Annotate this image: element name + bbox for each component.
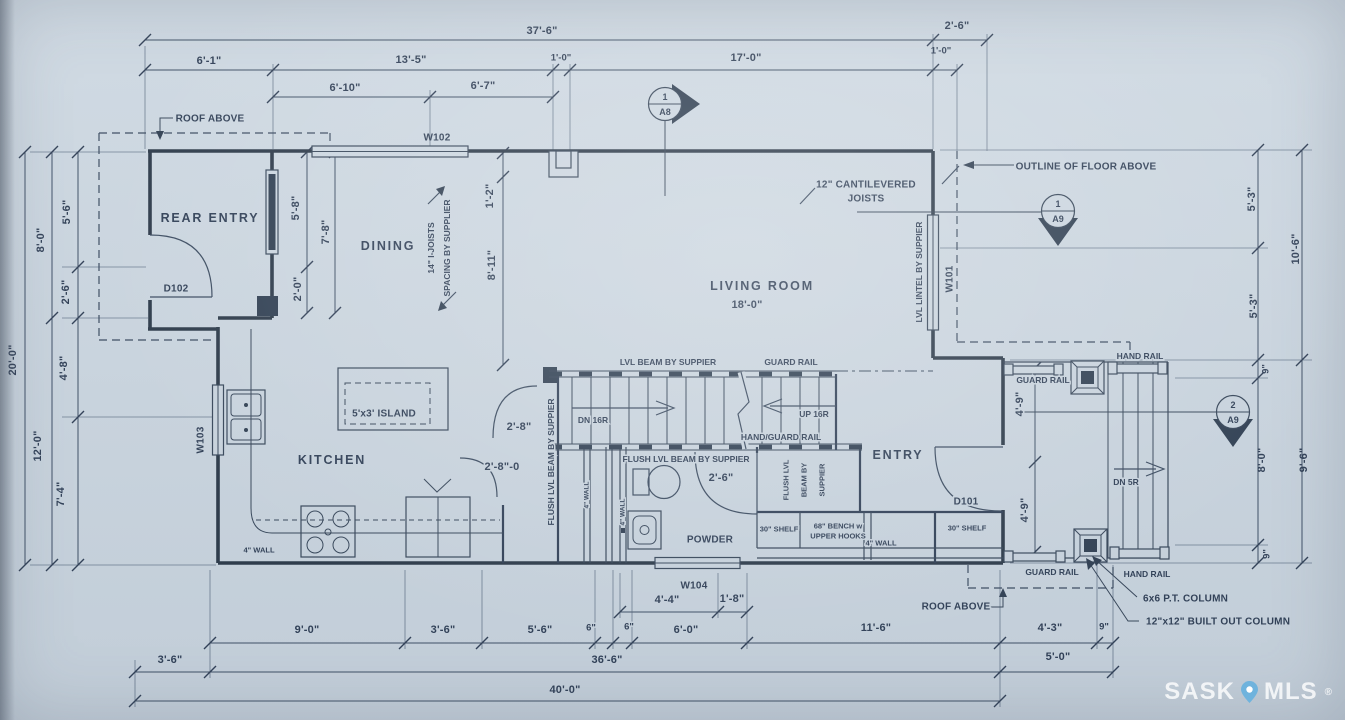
window-w104 [655,558,740,569]
front-porch [1003,361,1169,562]
dim-right-10-6: 10'-6" [1290,233,1302,264]
dim-living-18-0: 18'-0" [731,299,762,311]
note-guard-rail-stairs: GUARD RAIL [764,357,817,367]
section-marker-1-a9: 1 A9 [1038,195,1078,247]
counter-edge [251,329,503,533]
note-bench-line1: 68" BENCH w [814,522,863,531]
island [338,368,448,430]
dim-top-2-6: 2'-6" [945,20,970,32]
stove [301,506,355,557]
dim-left-20-0: 20'-0" [7,344,19,375]
note-bench-line2: UPPER HOOKS [810,532,865,541]
tag-w102: W102 [424,133,451,144]
section-marker-1-a8: 1 A8 [649,84,701,124]
dim-top-17-0: 17'-0" [730,52,761,64]
dim-bottom-3-6-left: 3'-6" [158,654,183,666]
kitchen-fixtures [227,329,503,557]
kitchen-sink [227,390,265,444]
note-flush-beam-h: FLUSH LVL BEAM BY SUPPIER [622,454,749,464]
note-4in-wall-hall2: 4" WALL [620,499,627,526]
note-flush-line3: SUPPIER [818,463,827,497]
floor-plan-photo: 1 A8 1 A9 2 A9 37'-6" 2'-6" 6'-1" 13'-5"… [0,0,1345,720]
dim-right-8-0: 8'-0" [1256,448,1268,473]
dim-bottom-4-3: 4'-3" [1038,622,1063,634]
hand-rail-bottom [1110,547,1169,559]
dim-top-37-6: 37'-6" [526,25,557,37]
note-4in-wall-hall1: 4" WALL [584,482,591,509]
room-kitchen: KITCHEN [298,453,366,467]
dim-bottom-4-4: 4'-4" [655,594,680,606]
note-flush-line1: FLUSH LVL [782,459,791,500]
dim-bottom-40-0: 40'-0" [549,684,580,696]
dim-2-8: 2'-8" [507,421,532,433]
dim-left-5-6: 5'-6" [61,200,73,225]
dim-bottom-6in-left: 6" [586,623,596,634]
chimney-chase [257,170,278,316]
dim-7-8: 7'-8" [320,220,332,245]
dashed-outlines [99,133,1130,588]
marker-number: 1 [1055,199,1060,209]
room-living: LIVING ROOM [710,279,814,293]
note-12x12-column: 12"x12" BUILT OUT COLUMN [1146,617,1290,628]
section-markers: 1 A8 1 A9 2 A9 [649,84,1254,447]
guard-rail-bottom [1004,551,1065,562]
marker-sheet: A9 [1227,415,1239,425]
powder-sink [621,511,661,549]
note-outline-floor-above: OUTLINE OF FLOOR ABOVE [1016,162,1157,173]
note-6x6-column: 6x6 P.T. COLUMN [1143,594,1228,605]
section-marker-2-a9: 2 A9 [1213,396,1253,448]
note-flush-line2: BEAM BY [800,463,809,498]
column-bottom [1074,529,1107,562]
dim-bottom-9in: 9" [1099,622,1109,633]
dim-bottom-1-8: 1'-8" [720,593,745,605]
room-entry: ENTRY [873,448,924,462]
windows [213,146,939,569]
dim-5-8: 5'-8" [290,196,302,221]
note-roof-above-br: ROOF ABOVE [922,602,991,613]
dim-2-6-powder: 2'-6" [709,472,734,484]
dim-right-9-6: 9'-6" [1298,448,1310,473]
note-lvl-beam: LVL BEAM BY SUPPIER [620,357,716,367]
dim-right-9in-lower: 9" [1262,549,1273,559]
dim-bottom-5-6: 5'-6" [528,624,553,636]
tag-w101: W101 [945,265,956,292]
note-ijoists-line2: SPACING BY SUPPLIER [442,200,452,297]
doors [150,235,1003,514]
dim-left-2-6: 2'-6" [60,280,72,305]
note-hand-guard-rail: HAND/GUARD RAIL [741,432,821,442]
dim-top-1-0-right: 1'-0" [931,46,952,57]
fridge [406,479,470,557]
leaders [156,118,1139,621]
marker-number: 2 [1230,400,1235,410]
dim-top-6-1: 6'-1" [197,55,222,67]
marker-sheet: A8 [659,107,671,117]
room-labels: REAR ENTRY DINING KITCHEN LIVING ROOM PO… [161,211,924,546]
dim-left-4-8: 4'-8" [58,356,70,381]
dim-2-0: 2'-0" [292,277,304,302]
note-up16: UP 16R [799,409,829,419]
marker-sheet: A9 [1052,214,1064,224]
note-guard-rail-porch-bottom: GUARD RAIL [1025,567,1078,577]
porch-down-arrow [1114,462,1164,476]
dim-bottom-9-0: 9'-0" [295,624,320,636]
dim-bottom-6-0: 6'-0" [674,624,699,636]
note-ijoists-line1: 14" I-JOISTS [426,222,436,274]
guard-rail-top [1004,364,1063,375]
dim-bottom-3-6: 3'-6" [431,624,456,636]
dim-bottom-11-6: 11'-6" [861,622,891,634]
dim-top-6-7: 6'-7" [471,80,496,92]
dim-right-5-3-upper: 5'-3" [1246,187,1258,212]
dim-top-13-5: 13'-5" [395,54,426,66]
note-guard-rail-porch-top: GUARD RAIL [1016,375,1069,385]
dim-bottom-36-6: 36'-6" [591,654,622,666]
dim-left-7-4: 7'-4" [55,482,67,507]
tag-w104: W104 [681,581,708,592]
tag-d102: D102 [164,284,189,295]
dim-right-5-3-lower: 5'-3" [1248,294,1260,319]
interior-walls [503,374,1003,563]
island-label: 5'x3' ISLAND [352,409,416,420]
wall-post [549,151,578,177]
window-w103 [213,385,224,455]
tag-d101: D101 [954,497,979,508]
note-dn5: DN 5R [1113,477,1139,487]
note-cantilever-line1: 12" CANTILEVERED [816,180,916,191]
toilet [633,466,680,499]
floor-plan-drawing: 1 A8 1 A9 2 A9 37'-6" 2'-6" 6'-1" 13'-5"… [0,0,1345,720]
dim-4-9-lower: 4'-9" [1019,498,1031,523]
watermark-reg: ® [1325,687,1333,698]
dim-left-8-0: 8'-0" [35,228,47,253]
dim-2-8-0: 2'-8"-0 [485,461,520,473]
note-shelf-30-right: 30" SHELF [948,524,987,533]
dim-bottom-5-0: 5'-0" [1046,651,1071,663]
tag-w103: W103 [196,426,207,453]
note-flush-beam-v: FLUSH LVL BEAM BY SUPPIER [546,398,556,525]
watermark-mls: MLS [1264,678,1318,706]
saskmls-watermark: SASK MLS® [1164,678,1333,706]
watermark-sask: SASK [1164,678,1235,706]
dim-8-11: 8'-11" [486,250,498,280]
map-pin-icon [1241,681,1258,703]
note-hand-rail-porch-top: HAND RAIL [1117,351,1164,361]
note-lvl-lintel: LVL LINTEL BY SUPPIER [914,222,924,323]
note-roof-above-tl: ROOF ABOVE [176,114,245,125]
note-dn16: DN 16R [578,415,608,425]
window-w101 [928,215,939,330]
note-4in-wall-kitchen: 4" WALL [243,546,274,555]
dim-left-12-0: 12'-0" [32,430,44,461]
dim-4-9-upper: 4'-9" [1014,392,1026,417]
note-hand-rail-porch-bottom: HAND RAIL [1124,569,1171,579]
room-dining: DINING [361,239,416,253]
room-rear-entry: REAR ENTRY [161,211,260,225]
powder-fixtures [621,466,680,550]
note-cantilever-line2: JOISTS [848,194,885,205]
dim-1-2: 1'-2" [484,184,496,209]
hand-rail-top [1108,362,1167,374]
window-w102 [312,146,468,157]
dim-top-1-0-left: 1'-0" [551,53,572,64]
column-top [1071,361,1104,394]
dim-top-6-10: 6'-10" [329,82,360,94]
dim-right-9in-upper: 9" [1261,364,1272,374]
dim-bottom-6in-right: 6" [624,622,634,633]
note-shelf-30-left: 30" SHELF [760,525,799,534]
room-powder: POWDER [687,535,734,546]
note-4in-wall-bench: 4" WALL [865,539,896,548]
down-arrow [572,401,674,415]
marker-number: 1 [662,92,667,102]
